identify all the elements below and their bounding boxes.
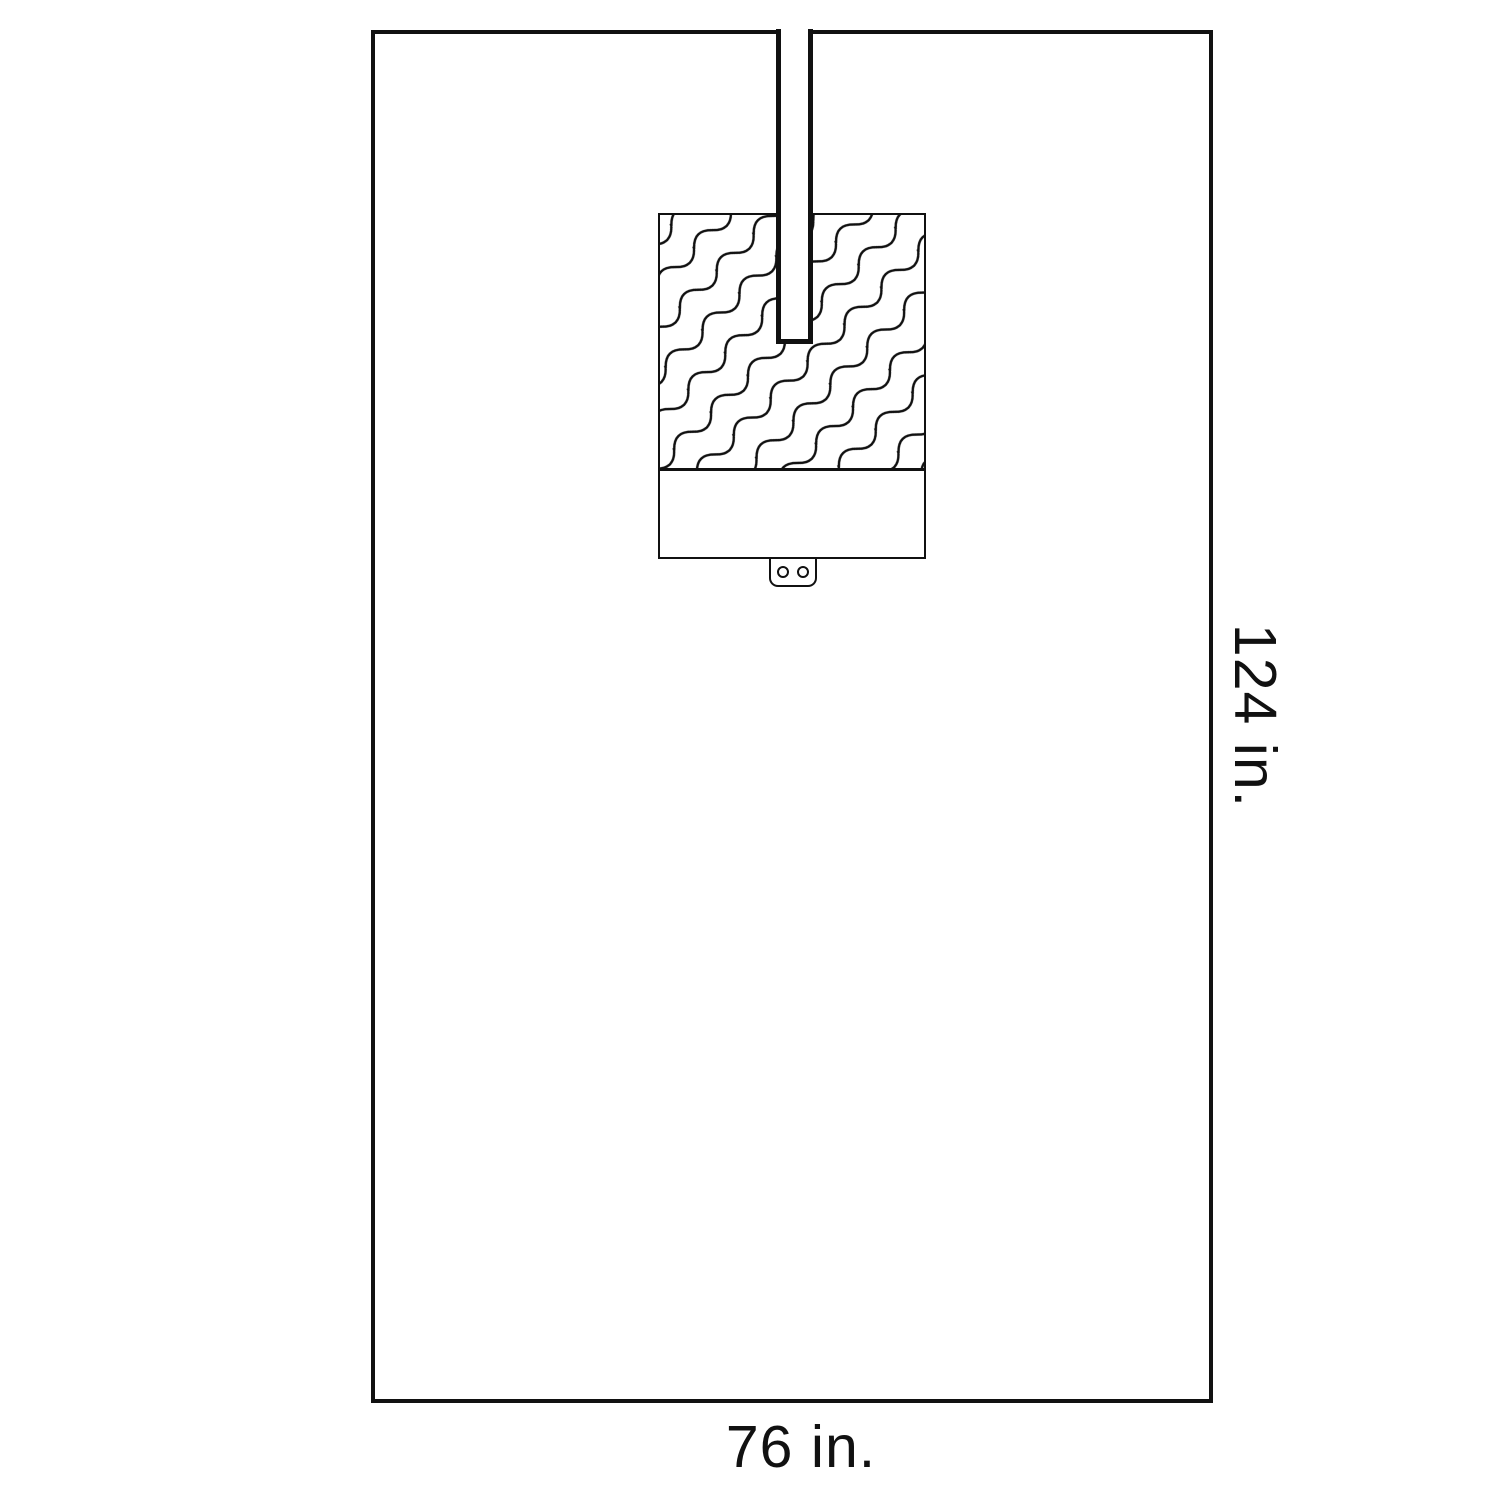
height-dimension-label: 124 in. bbox=[1221, 624, 1289, 808]
tab-hole-left-icon bbox=[777, 566, 789, 578]
drape-dimension-diagram: 124 in. 76 in. bbox=[0, 0, 1500, 1500]
tube-holder-tab bbox=[769, 556, 817, 587]
width-dimension-label: 76 in. bbox=[726, 1413, 876, 1481]
drape-slit bbox=[776, 29, 813, 344]
tab-hole-right-icon bbox=[797, 566, 809, 578]
patch-plain-zone bbox=[660, 471, 924, 556]
